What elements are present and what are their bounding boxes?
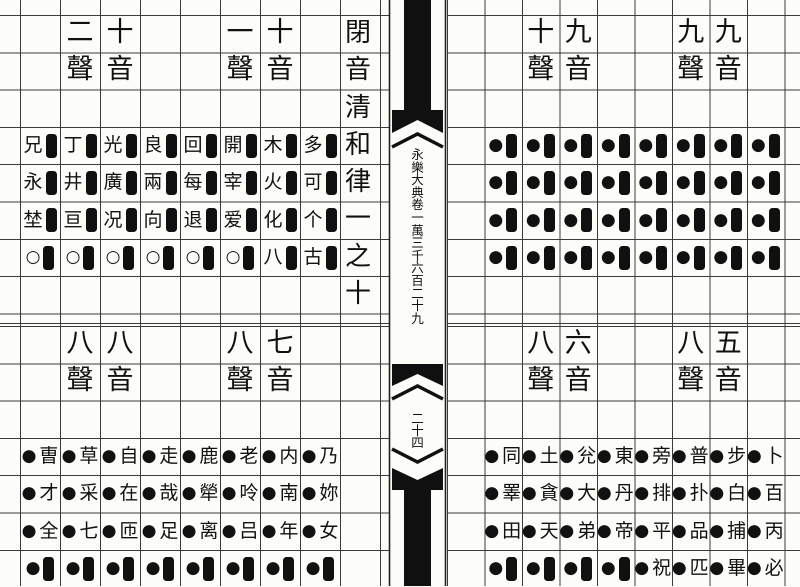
glyph-cell: ●▮ — [709, 202, 747, 239]
tablet-bar-icon: ▮ — [326, 246, 337, 270]
cell-character: 可 — [303, 173, 322, 192]
tablet-bar-icon: ▮ — [43, 246, 54, 270]
glyph-cell: ●▮ — [522, 127, 560, 164]
glyph-cell: 回▮ — [180, 127, 220, 164]
tablet-bar-icon: ▮ — [206, 171, 217, 195]
glyph-cell: ●田 — [484, 513, 522, 550]
sheng-label: 八聲 — [220, 325, 260, 400]
filled-circle-icon: ● — [597, 523, 612, 540]
glyph-cell: ●草 — [60, 438, 100, 475]
cell-character: 自 — [119, 447, 138, 466]
glyph-cell: ●▮ — [484, 127, 522, 164]
filled-circle-icon: ● — [262, 485, 277, 502]
glyph-cell: ●▮ — [180, 550, 220, 587]
glyph-cell: ●平 — [634, 513, 672, 550]
filled-circle-icon: ● — [638, 137, 653, 154]
tablet-bar-icon: ▮ — [283, 557, 294, 581]
glyph-cell: ●▮ — [559, 202, 597, 239]
glyph-cell: ●▮ — [634, 239, 672, 276]
filled-circle-icon: ● — [62, 448, 77, 465]
glyph-cell: ●▮ — [484, 550, 522, 587]
cell-character: 東 — [615, 447, 634, 466]
glyph-cell: ●在 — [100, 475, 140, 512]
filled-circle-icon: ● — [484, 448, 499, 465]
spine-folio-number: 二十四 — [411, 413, 425, 448]
sheng-label: 八聲 — [522, 325, 560, 400]
tablet-bar-icon: ▮ — [326, 171, 337, 195]
filled-circle-icon: ● — [672, 560, 687, 577]
glyph-cell: ●犖 — [180, 475, 220, 512]
cell-table: ●同●土●兊●東●睪●貪●大●丹●田●天●弟●帝●▮●▮●▮●▮ — [484, 438, 634, 587]
tablet-bar-icon: ▮ — [619, 208, 630, 232]
tablet-bar-icon: ▮ — [123, 246, 134, 270]
tablet-bar-icon: ▮ — [246, 134, 257, 158]
filled-circle-icon: ● — [597, 485, 612, 502]
tablet-bar-icon: ▮ — [731, 246, 742, 270]
cell-character: 古 — [303, 248, 322, 267]
glyph-cell: 多▮ — [300, 127, 340, 164]
tablet-bar-icon: ▮ — [544, 246, 555, 270]
glyph-cell: ●▮ — [484, 239, 522, 276]
filled-circle-icon: ● — [559, 485, 574, 502]
cell-character: 离 — [199, 522, 218, 541]
filled-circle-icon: ● — [563, 249, 578, 266]
tablet-bar-icon: ▮ — [581, 171, 592, 195]
tablet-bar-icon: ▮ — [83, 557, 94, 581]
glyph-cell: 古▮ — [300, 239, 340, 276]
block-header-yisheng-shiyin: 一聲 十音 — [220, 14, 300, 89]
cell-table: ●鹿●老●内●乃●犖●呤●南●妳●离●吕●年●女●▮●▮●▮●▮ — [180, 438, 340, 587]
tablet-bar-icon: ▮ — [656, 208, 667, 232]
filled-circle-icon: ● — [66, 560, 81, 577]
filled-circle-icon: ● — [634, 448, 649, 465]
glyph-cell: ●▮ — [522, 239, 560, 276]
filled-circle-icon: ● — [709, 523, 724, 540]
tablet-bar-icon: ▮ — [83, 246, 94, 270]
cell-character: 祝 — [652, 559, 671, 578]
block-header-ersheng-shiyin: 二聲 十音 — [60, 14, 140, 89]
tablet-bar-icon: ▮ — [581, 208, 592, 232]
spine: 永樂大典卷一萬三千六百二十九 二十四 — [388, 0, 447, 586]
filled-circle-icon: ● — [709, 485, 724, 502]
glyph-cell: ●帝 — [597, 513, 635, 550]
glyph-cell: ●▮ — [709, 164, 747, 201]
block-header-basheng-qiyin: 八聲 七音 — [220, 325, 300, 400]
cell-character: 年 — [279, 522, 298, 541]
filled-circle-icon: ● — [526, 212, 541, 229]
filled-circle-icon: ● — [634, 523, 649, 540]
block-header-basheng-wuyin: 八聲 五音 — [672, 325, 747, 400]
cell-character: 旁 — [652, 447, 671, 466]
glyph-cell: ●兊 — [559, 438, 597, 475]
cell-character: 内 — [279, 447, 298, 466]
filled-circle-icon: ● — [102, 448, 117, 465]
filled-circle-icon: ● — [262, 523, 277, 540]
cell-character: 永 — [23, 173, 42, 192]
cell-character: 貪 — [540, 484, 559, 503]
tablet-bar-icon: ▮ — [694, 171, 705, 195]
cell-character: 畢 — [727, 559, 746, 578]
tablet-bar-icon: ▮ — [243, 246, 254, 270]
cell-character: 乃 — [319, 447, 338, 466]
glyph-cell: ●▮ — [672, 164, 710, 201]
cell-character: 女 — [319, 522, 338, 541]
glyph-cell: ●内 — [260, 438, 300, 475]
filled-circle-icon: ● — [22, 523, 37, 540]
tablet-bar-icon: ▮ — [769, 208, 780, 232]
tablet-bar-icon: ▮ — [86, 208, 97, 232]
filled-circle-icon: ● — [672, 448, 687, 465]
glyph-cell: ●必 — [747, 550, 785, 587]
cell-table: ●旁●普●步●卜●排●扑●白●百●平●品●捕●丙●祝●匹●畢●必 — [634, 438, 784, 587]
sheng-label: 八聲 — [672, 325, 710, 400]
glyph-cell: ●▮ — [634, 127, 672, 164]
block-header-basheng-liuyin: 八聲 六音 — [522, 325, 597, 400]
cell-character: 土 — [540, 447, 559, 466]
filled-circle-icon: ● — [597, 448, 612, 465]
cell-character: 井 — [63, 173, 82, 192]
glyph-cell: ●扑 — [672, 475, 710, 512]
tablet-bar-icon: ▮ — [46, 208, 57, 232]
filled-circle-icon: ● — [182, 485, 197, 502]
filled-circle-icon: ● — [676, 137, 691, 154]
tablet-bar-icon: ▮ — [581, 134, 592, 158]
glyph-cell: 八▮ — [260, 239, 300, 276]
cell-character: 同 — [502, 447, 521, 466]
filled-circle-icon: ● — [488, 212, 503, 229]
cell-character: 曺 — [39, 447, 58, 466]
tablet-bar-icon: ▮ — [619, 557, 630, 581]
glyph-cell: ●采 — [60, 475, 100, 512]
yin-label: 九音 — [710, 14, 748, 89]
glyph-cell: 亘▮ — [60, 202, 100, 239]
tablet-bar-icon: ▮ — [126, 134, 137, 158]
glyph-cell: ●▮ — [484, 202, 522, 239]
filled-circle-icon: ● — [563, 174, 578, 191]
filled-circle-icon: ● — [634, 560, 649, 577]
tablet-bar-icon: ▮ — [544, 171, 555, 195]
filled-circle-icon: ● — [601, 212, 616, 229]
glyph-cell: ●呤 — [220, 475, 260, 512]
cell-table: ●曺●草●自●走●才●采●在●哉●全●七●匝●足●▮●▮●▮●▮ — [20, 438, 180, 587]
spine-volume-title: 永樂大典卷一萬三千六百二十九 — [410, 149, 425, 325]
filled-circle-icon: ● — [522, 485, 537, 502]
cell-character: 大 — [577, 484, 596, 503]
glyph-cell: 火▮ — [260, 164, 300, 201]
cell-character: 必 — [765, 559, 784, 578]
filled-circle-icon: ● — [601, 174, 616, 191]
glyph-cell: ●旁 — [634, 438, 672, 475]
glyph-cell: ●普 — [672, 438, 710, 475]
manuscript-leaf: 二聲 十音 一聲 十音 十聲 九音 九聲 九音 八聲 八音 八聲 七音 八聲 六… — [0, 0, 800, 586]
filled-circle-icon: ● — [672, 485, 687, 502]
filled-circle-icon: ● — [266, 560, 281, 577]
tablet-bar-icon: ▮ — [163, 557, 174, 581]
filled-circle-icon: ● — [522, 523, 537, 540]
cell-character: 八 — [263, 248, 282, 267]
cell-character: 光 — [103, 136, 122, 155]
glyph-cell: 退▮ — [180, 202, 220, 239]
cell-character: 向 — [143, 211, 162, 230]
filled-circle-icon: ● — [306, 560, 321, 577]
sheng-label: 十聲 — [522, 14, 560, 89]
tablet-bar-icon: ▮ — [206, 134, 217, 158]
cell-character: 草 — [79, 447, 98, 466]
tablet-bar-icon: ▮ — [694, 246, 705, 270]
glyph-cell: 爱▮ — [220, 202, 260, 239]
glyph-cell: ●▮ — [597, 127, 635, 164]
filled-circle-icon: ● — [747, 523, 762, 540]
glyph-cell: ●▮ — [672, 239, 710, 276]
glyph-cell: ●丹 — [597, 475, 635, 512]
glyph-cell: ●東 — [597, 438, 635, 475]
cell-table: 兄▮丁▮光▮良▮永▮井▮廣▮兩▮埜▮亘▮况▮向▮○▮○▮○▮○▮ — [20, 127, 180, 276]
tablet-bar-icon: ▮ — [506, 208, 517, 232]
glyph-cell: ●弟 — [559, 513, 597, 550]
filled-circle-icon: ● — [601, 560, 616, 577]
glyph-cell: ●▮ — [672, 202, 710, 239]
filled-circle-icon: ● — [484, 523, 499, 540]
tablet-bar-icon: ▮ — [206, 208, 217, 232]
glyph-cell: ●▮ — [559, 550, 597, 587]
sheng-label: 八聲 — [60, 325, 100, 400]
section-title-column: 閉音清和律一之十 — [339, 15, 377, 313]
cell-character: 丹 — [615, 484, 634, 503]
cell-character: 才 — [39, 484, 58, 503]
filled-circle-icon: ● — [751, 249, 766, 266]
filled-circle-icon: ● — [672, 523, 687, 540]
glyph-cell: ●步 — [709, 438, 747, 475]
filled-circle-icon: ● — [522, 448, 537, 465]
glyph-cell: ●七 — [60, 513, 100, 550]
filled-circle-icon: ● — [222, 448, 237, 465]
glyph-cell: ●▮ — [260, 550, 300, 587]
tablet-bar-icon: ▮ — [203, 246, 214, 270]
glyph-cell: ○▮ — [20, 239, 60, 276]
glyph-cell: ●▮ — [747, 127, 785, 164]
glyph-cell: ●白 — [709, 475, 747, 512]
cell-character: 在 — [119, 484, 138, 503]
filled-circle-icon: ● — [146, 560, 161, 577]
glyph-cell: ●走 — [140, 438, 180, 475]
glyph-cell: ●▮ — [747, 202, 785, 239]
glyph-cell: 向▮ — [140, 202, 180, 239]
filled-circle-icon: ● — [302, 523, 317, 540]
tablet-bar-icon: ▮ — [86, 134, 97, 158]
filled-circle-icon: ● — [751, 137, 766, 154]
glyph-cell: ●匹 — [672, 550, 710, 587]
filled-circle-icon: ● — [142, 523, 157, 540]
tablet-bar-icon: ▮ — [619, 134, 630, 158]
glyph-cell: ○▮ — [100, 239, 140, 276]
glyph-cell: ●▮ — [140, 550, 180, 587]
glyph-cell: 廣▮ — [100, 164, 140, 201]
cell-character: 火 — [263, 173, 282, 192]
glyph-cell: ●▮ — [747, 239, 785, 276]
tablet-bar-icon: ▮ — [506, 134, 517, 158]
hollow-circle-icon: ○ — [106, 249, 121, 266]
sheng-label: 二聲 — [60, 14, 100, 89]
cell-character: 呤 — [239, 484, 258, 503]
glyph-cell: ●品 — [672, 513, 710, 550]
glyph-cell: 永▮ — [20, 164, 60, 201]
cell-character: 宰 — [223, 173, 242, 192]
hollow-circle-icon: ○ — [146, 249, 161, 266]
hollow-circle-icon: ○ — [186, 249, 201, 266]
cell-character: 卜 — [765, 447, 784, 466]
cell-character: 足 — [159, 522, 178, 541]
tablet-bar-icon: ▮ — [731, 171, 742, 195]
cell-character: 品 — [690, 522, 709, 541]
block-header-basheng-bayin: 八聲 八音 — [60, 325, 140, 400]
glyph-cell: ●曺 — [20, 438, 60, 475]
glyph-cell: ●老 — [220, 438, 260, 475]
cell-character: 良 — [143, 136, 162, 155]
glyph-cell: ●▮ — [709, 127, 747, 164]
cell-character: 南 — [279, 484, 298, 503]
tablet-bar-icon: ▮ — [166, 208, 177, 232]
cell-character: 况 — [103, 211, 122, 230]
cell-character: 白 — [727, 484, 746, 503]
glyph-cell: ●▮ — [559, 127, 597, 164]
tablet-bar-icon: ▮ — [731, 208, 742, 232]
cell-table: 回▮開▮木▮多▮每▮宰▮火▮可▮退▮爱▮化▮个▮○▮○▮八▮古▮ — [180, 127, 340, 276]
yin-label: 八音 — [100, 325, 140, 400]
cell-character: 采 — [79, 484, 98, 503]
cell-character: 扑 — [690, 484, 709, 503]
glyph-cell: 良▮ — [140, 127, 180, 164]
glyph-cell: ●女 — [300, 513, 340, 550]
filled-circle-icon: ● — [526, 137, 541, 154]
cell-character: 兄 — [23, 136, 42, 155]
tablet-bar-icon: ▮ — [619, 246, 630, 270]
filled-circle-icon: ● — [747, 448, 762, 465]
tablet-bar-icon: ▮ — [243, 557, 254, 581]
glyph-cell: 可▮ — [300, 164, 340, 201]
tablet-bar-icon: ▮ — [769, 171, 780, 195]
filled-circle-icon: ● — [222, 485, 237, 502]
hollow-circle-icon: ○ — [26, 249, 41, 266]
cell-character: 弟 — [577, 522, 596, 541]
tablet-bar-icon: ▮ — [43, 557, 54, 581]
tablet-bar-icon: ▮ — [656, 171, 667, 195]
tablet-bar-icon: ▮ — [126, 171, 137, 195]
glyph-cell: ●▮ — [20, 550, 60, 587]
glyph-cell: ●丙 — [747, 513, 785, 550]
glyph-cell: ●哉 — [140, 475, 180, 512]
filled-circle-icon: ● — [526, 174, 541, 191]
tablet-bar-icon: ▮ — [286, 134, 297, 158]
filled-circle-icon: ● — [634, 485, 649, 502]
glyph-cell: ●妳 — [300, 475, 340, 512]
tablet-bar-icon: ▮ — [323, 557, 334, 581]
cell-character: 帝 — [615, 522, 634, 541]
glyph-cell: ●▮ — [100, 550, 140, 587]
glyph-cell: 每▮ — [180, 164, 220, 201]
glyph-cell: ●貪 — [522, 475, 560, 512]
cell-character: 退 — [183, 211, 202, 230]
cell-character: 田 — [502, 522, 521, 541]
tablet-bar-icon: ▮ — [286, 208, 297, 232]
tablet-bar-icon: ▮ — [656, 134, 667, 158]
glyph-cell: ●离 — [180, 513, 220, 550]
cell-character: 妳 — [319, 484, 338, 503]
glyph-cell: ●才 — [20, 475, 60, 512]
glyph-cell: 况▮ — [100, 202, 140, 239]
hollow-circle-icon: ○ — [66, 249, 81, 266]
filled-circle-icon: ● — [488, 137, 503, 154]
filled-circle-icon: ● — [302, 485, 317, 502]
glyph-cell: 个▮ — [300, 202, 340, 239]
filled-circle-icon: ● — [488, 560, 503, 577]
cell-character: 丙 — [765, 522, 784, 541]
tablet-bar-icon: ▮ — [619, 171, 630, 195]
glyph-cell: 兄▮ — [20, 127, 60, 164]
filled-circle-icon: ● — [262, 448, 277, 465]
glyph-cell: 宰▮ — [220, 164, 260, 201]
glyph-cell: ●▮ — [709, 239, 747, 276]
glyph-cell: 光▮ — [100, 127, 140, 164]
filled-circle-icon: ● — [601, 137, 616, 154]
cell-character: 睪 — [502, 484, 521, 503]
cell-character: 全 — [39, 522, 58, 541]
glyph-cell: ●捕 — [709, 513, 747, 550]
filled-circle-icon: ● — [676, 212, 691, 229]
filled-circle-icon: ● — [22, 485, 37, 502]
cell-character: 木 — [263, 136, 282, 155]
glyph-cell: 化▮ — [260, 202, 300, 239]
filled-circle-icon: ● — [186, 560, 201, 577]
cell-character: 爱 — [223, 211, 242, 230]
glyph-cell: ●天 — [522, 513, 560, 550]
tablet-bar-icon: ▮ — [46, 171, 57, 195]
tablet-bar-icon: ▮ — [506, 246, 517, 270]
cell-character: 平 — [652, 522, 671, 541]
cell-character: 犖 — [199, 484, 218, 503]
tablet-bar-icon: ▮ — [731, 134, 742, 158]
filled-circle-icon: ● — [713, 212, 728, 229]
glyph-cell: 井▮ — [60, 164, 100, 201]
cell-character: 埜 — [23, 211, 42, 230]
glyph-cell: ●卜 — [747, 438, 785, 475]
tablet-bar-icon: ▮ — [166, 134, 177, 158]
tablet-bar-icon: ▮ — [286, 171, 297, 195]
glyph-cell: ●▮ — [484, 164, 522, 201]
tablet-bar-icon: ▮ — [246, 171, 257, 195]
tablet-bar-icon: ▮ — [544, 134, 555, 158]
tablet-bar-icon: ▮ — [769, 134, 780, 158]
tablet-bar-icon: ▮ — [166, 171, 177, 195]
glyph-cell: ●▮ — [559, 164, 597, 201]
filled-circle-icon: ● — [713, 137, 728, 154]
glyph-cell: ●全 — [20, 513, 60, 550]
filled-circle-icon: ● — [713, 174, 728, 191]
cell-character: 多 — [303, 136, 322, 155]
cell-character: 吕 — [239, 522, 258, 541]
yin-label: 六音 — [560, 325, 598, 400]
glyph-cell: ●▮ — [300, 550, 340, 587]
tablet-bar-icon: ▮ — [286, 246, 297, 270]
sheng-label: 一聲 — [220, 14, 260, 89]
yin-label: 五音 — [710, 325, 748, 400]
filled-circle-icon: ● — [751, 174, 766, 191]
glyph-cell: ●▮ — [597, 550, 635, 587]
cell-character: 老 — [239, 447, 258, 466]
filled-circle-icon: ● — [302, 448, 317, 465]
glyph-cell: 兩▮ — [140, 164, 180, 201]
cell-character: 廣 — [103, 173, 122, 192]
tablet-bar-icon: ▮ — [126, 208, 137, 232]
